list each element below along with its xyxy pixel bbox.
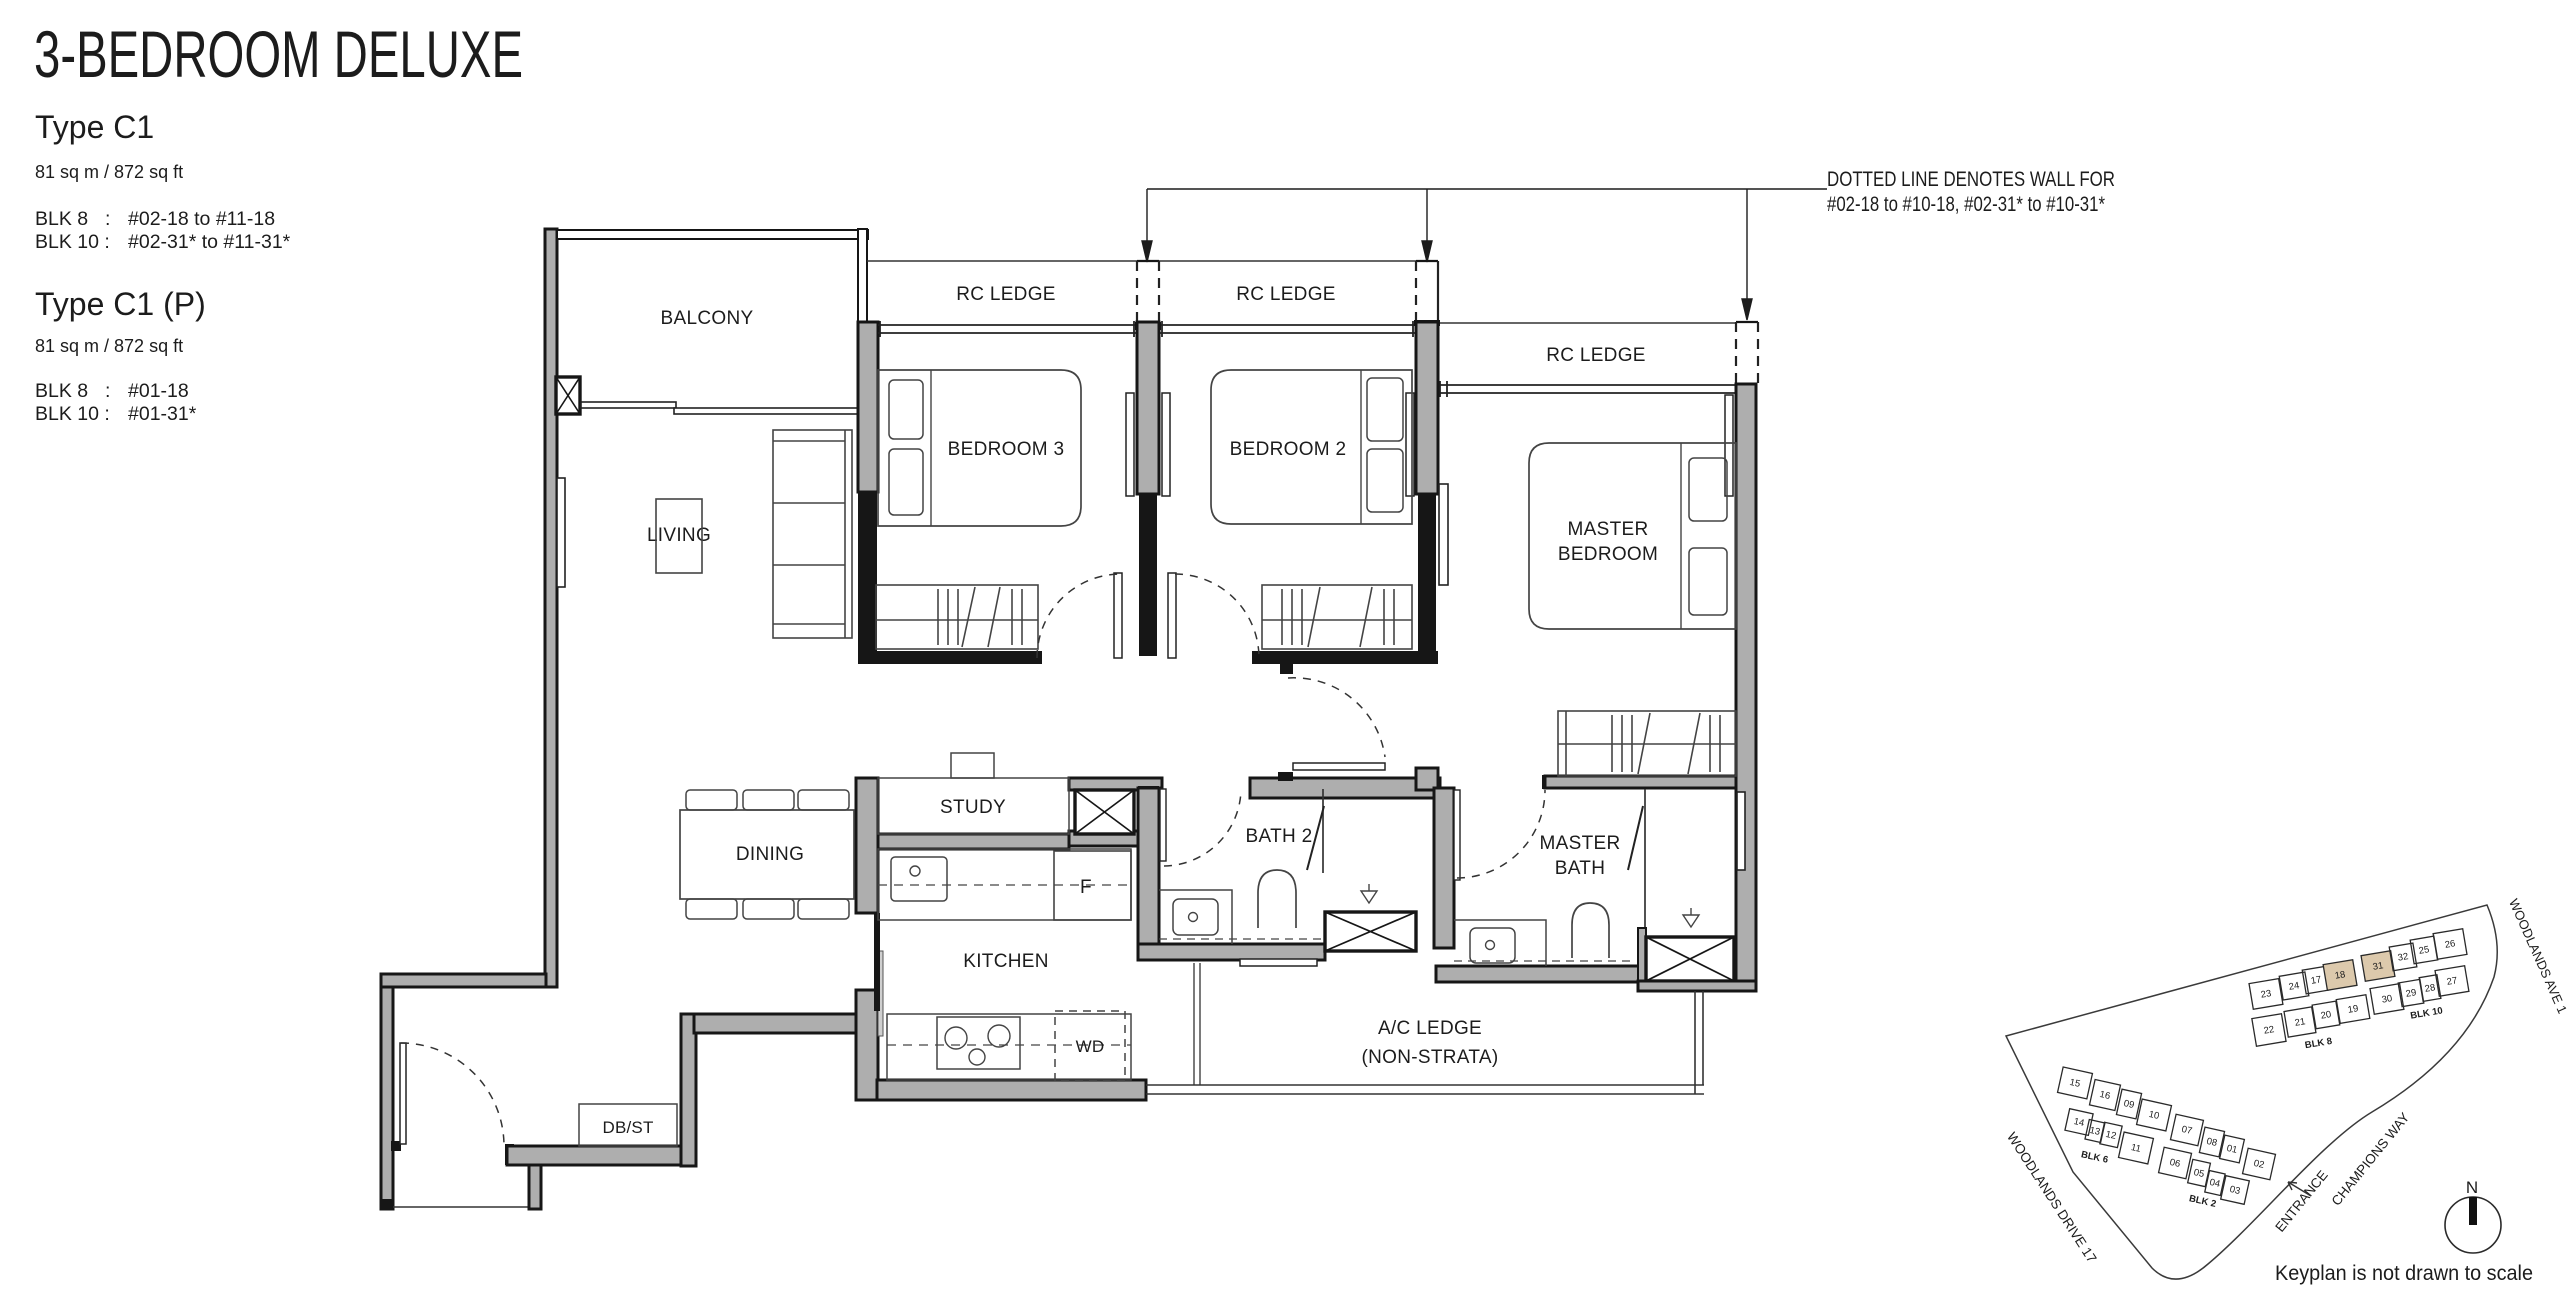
svg-text:32: 32 bbox=[2397, 951, 2409, 964]
svg-text:RC LEDGE: RC LEDGE bbox=[1236, 284, 1336, 305]
svg-text:BLK 10 :#02-31* to #11-31*: BLK 10 :#02-31* to #11-31* bbox=[35, 231, 291, 253]
svg-text:BALCONY: BALCONY bbox=[661, 308, 754, 329]
svg-text:A/C LEDGE: A/C LEDGE bbox=[1378, 1018, 1482, 1039]
svg-text:Type C1 (P): Type C1 (P) bbox=[35, 286, 206, 322]
svg-text:27: 27 bbox=[2446, 975, 2458, 988]
svg-text:30: 30 bbox=[2381, 993, 2393, 1006]
svg-text:#02-18 to #10-18, #02-31* to #: #02-18 to #10-18, #02-31* to #10-31* bbox=[1827, 193, 2105, 216]
svg-text:BEDROOM: BEDROOM bbox=[1558, 544, 1658, 565]
svg-text:25: 25 bbox=[2418, 944, 2430, 957]
svg-text:MASTER: MASTER bbox=[1568, 519, 1649, 540]
svg-text:MASTER: MASTER bbox=[1540, 833, 1621, 854]
svg-text:22: 22 bbox=[2263, 1024, 2275, 1037]
svg-text:DOTTED LINE DENOTES WALL FOR: DOTTED LINE DENOTES WALL FOR bbox=[1827, 168, 2115, 191]
svg-text:BEDROOM 2: BEDROOM 2 bbox=[1230, 439, 1347, 460]
svg-text:N: N bbox=[2466, 1178, 2478, 1197]
svg-text:BLK 8:#02-18 to #11-18: BLK 8:#02-18 to #11-18 bbox=[35, 208, 275, 230]
svg-text:29: 29 bbox=[2405, 987, 2417, 1000]
svg-text:WD: WD bbox=[1076, 1037, 1105, 1056]
svg-text:28: 28 bbox=[2424, 982, 2436, 995]
svg-text:26: 26 bbox=[2444, 938, 2456, 951]
svg-text:BATH: BATH bbox=[1555, 858, 1605, 879]
svg-text:BEDROOM 3: BEDROOM 3 bbox=[948, 439, 1065, 460]
svg-text:3-BEDROOM DELUXE: 3-BEDROOM DELUXE bbox=[34, 17, 523, 91]
svg-text:31: 31 bbox=[2372, 960, 2384, 973]
svg-text:18: 18 bbox=[2334, 969, 2346, 982]
svg-text:19: 19 bbox=[2347, 1003, 2359, 1016]
svg-text:STUDY: STUDY bbox=[940, 797, 1006, 818]
svg-text:F: F bbox=[1080, 877, 1092, 898]
svg-text:81 sq m / 872 sq ft: 81 sq m / 872 sq ft bbox=[35, 162, 183, 182]
svg-text:Keyplan is not drawn to scale: Keyplan is not drawn to scale bbox=[2275, 1261, 2533, 1285]
svg-text:20: 20 bbox=[2320, 1009, 2332, 1022]
svg-text:DB/ST: DB/ST bbox=[602, 1118, 653, 1137]
svg-text:DINING: DINING bbox=[736, 844, 804, 865]
svg-text:BATH 2: BATH 2 bbox=[1246, 826, 1313, 847]
svg-text:Type C1: Type C1 bbox=[35, 109, 154, 145]
svg-text:23: 23 bbox=[2260, 988, 2272, 1001]
svg-text:17: 17 bbox=[2310, 974, 2322, 987]
svg-text:21: 21 bbox=[2294, 1016, 2306, 1029]
svg-text:RC LEDGE: RC LEDGE bbox=[1546, 345, 1646, 366]
svg-text:24: 24 bbox=[2288, 980, 2300, 993]
svg-text:RC LEDGE: RC LEDGE bbox=[956, 284, 1056, 305]
svg-text:81 sq m / 872 sq ft: 81 sq m / 872 sq ft bbox=[35, 336, 183, 356]
svg-text:KITCHEN: KITCHEN bbox=[963, 951, 1049, 972]
svg-text:(NON-STRATA): (NON-STRATA) bbox=[1362, 1047, 1499, 1068]
